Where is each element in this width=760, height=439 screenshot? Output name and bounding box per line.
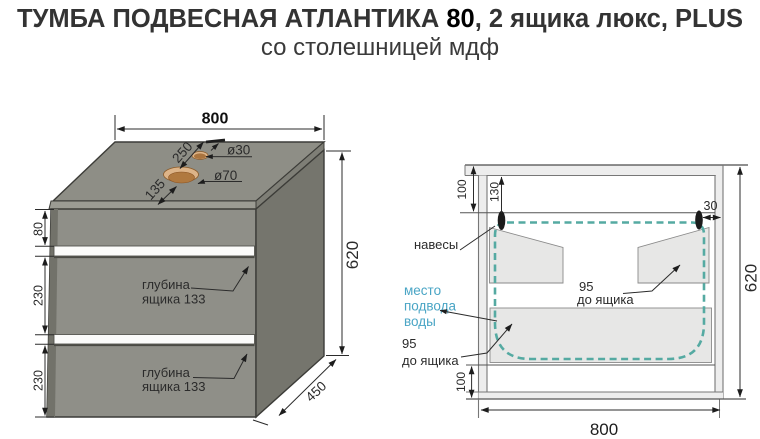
svg-text:до ящика: до ящика [577,292,634,307]
svg-text:глубина: глубина [142,365,191,380]
svg-text:глубина: глубина [142,277,191,292]
svg-text:подвода: подвода [404,299,457,314]
svg-text:130: 130 [488,182,502,202]
svg-text:230: 230 [32,285,46,306]
svg-text:620: 620 [343,241,362,269]
svg-text:ø30: ø30 [227,143,250,158]
svg-text:95: 95 [402,336,416,351]
svg-text:800: 800 [590,420,618,439]
svg-text:30: 30 [704,199,718,213]
svg-text:ящика 133: ящика 133 [142,379,206,394]
svg-text:ящика 133: ящика 133 [142,292,206,307]
svg-text:100: 100 [455,179,469,199]
svg-text:до ящика: до ящика [402,353,459,368]
svg-text:навесы: навесы [414,237,458,252]
svg-text:620: 620 [742,264,760,292]
svg-text:800: 800 [202,111,229,128]
svg-text:100: 100 [454,372,468,392]
svg-text:80: 80 [32,222,46,236]
svg-text:230: 230 [32,370,46,391]
svg-text:ø70: ø70 [214,168,237,183]
svg-text:со столешницей мдф: со столешницей мдф [261,34,499,61]
svg-text:место: место [404,283,441,298]
svg-text:ТУМБА ПОДВЕСНАЯ АТЛАНТИКА 80,: ТУМБА ПОДВЕСНАЯ АТЛАНТИКА 80, 2 ящика лю… [17,5,743,33]
svg-text:воды: воды [404,314,436,329]
